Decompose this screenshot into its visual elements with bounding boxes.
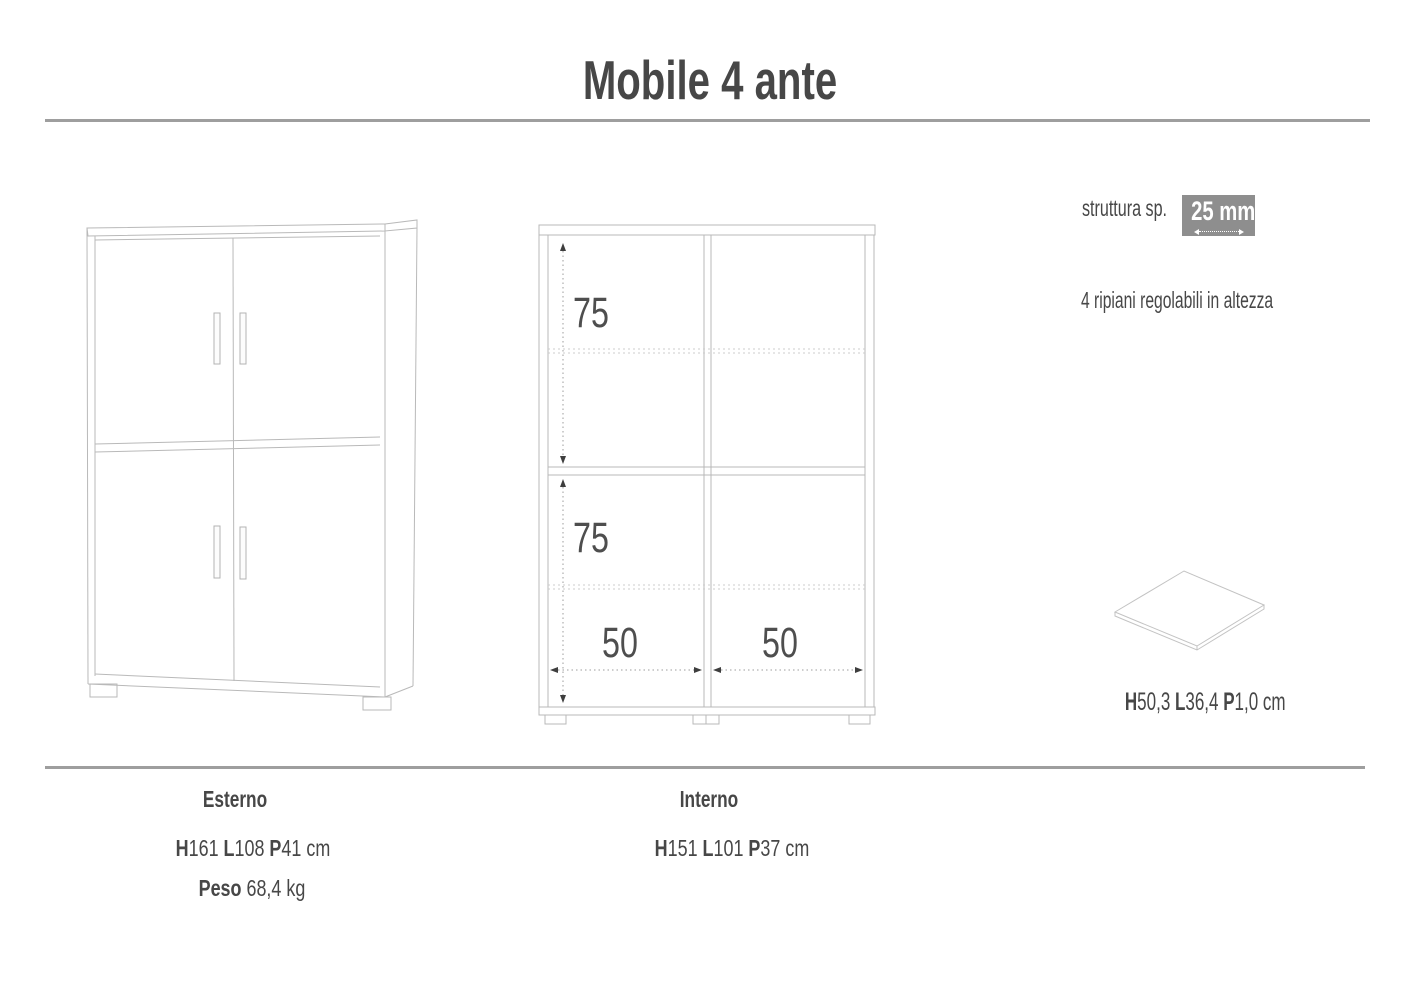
- interno-heading: Interno: [680, 788, 738, 811]
- dim-left-width-label: 50: [602, 622, 638, 665]
- thickness-badge-value: 25 mm: [1191, 198, 1246, 225]
- cabinet-exterior-drawing: [87, 220, 417, 710]
- width-arrow-icon: [1194, 228, 1244, 235]
- esterno-heading: Esterno: [203, 788, 267, 811]
- shelves-note: 4 ripiani regolabili in altezza: [1081, 289, 1273, 312]
- esterno-weight: Peso 68,4 kg: [179, 854, 306, 923]
- shelf-dimensions-label: H50,3 L36,4 P1,0 cm: [1106, 665, 1286, 740]
- thickness-badge: 25 mm: [1182, 195, 1255, 236]
- dim-lower-height-label: 75: [573, 517, 609, 560]
- door-handles: [214, 313, 246, 579]
- interno-dimensions: H151 L101 P37 cm: [635, 814, 810, 883]
- spec-sheet-page: Mobile 4 ante struttura sp. 25 mm 4 ripi…: [0, 0, 1414, 1000]
- dim-upper-height-label: 75: [573, 292, 609, 335]
- title-divider: [45, 119, 1370, 122]
- thickness-label: struttura sp.: [1082, 197, 1167, 220]
- footer-divider: [45, 766, 1365, 769]
- shelf-panel-drawing: [1115, 571, 1264, 650]
- page-title: Mobile 4 ante: [583, 53, 837, 108]
- dim-right-width-label: 50: [762, 622, 798, 665]
